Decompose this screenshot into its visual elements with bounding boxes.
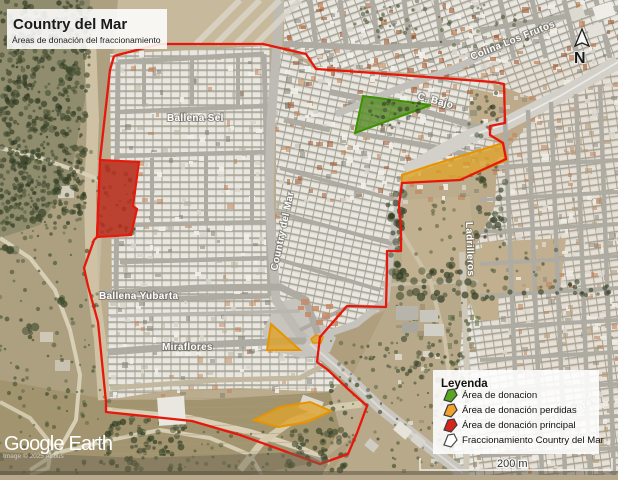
svg-text:Image © 2025 Airbus: Image © 2025 Airbus — [3, 452, 65, 460]
svg-text:Área de donación perdidas: Área de donación perdidas — [462, 405, 577, 416]
svg-text:Fraccionamiento Country del Ma: Fraccionamiento Country del Mar — [462, 435, 605, 446]
svg-text:Country del Mar: Country del Mar — [13, 16, 127, 33]
svg-text:Miraflores: Miraflores — [162, 342, 213, 353]
svg-text:Área de donación principal: Área de donación principal — [462, 420, 576, 431]
svg-text:Google Earth: Google Earth — [4, 433, 112, 455]
svg-text:Ladrilleros: Ladrilleros — [463, 222, 476, 277]
svg-text:N: N — [574, 50, 586, 67]
svg-text:Ballena Yubarta: Ballena Yubarta — [99, 291, 178, 302]
svg-text:Leyenda: Leyenda — [441, 378, 488, 390]
svg-text:Área de donacion: Área de donacion — [462, 390, 537, 401]
svg-text:Ballena Sel: Ballena Sel — [167, 113, 224, 124]
svg-text:Áreas de donación del fraccion: Áreas de donación del fraccionamiento — [12, 35, 161, 45]
svg-text:200 m: 200 m — [497, 458, 528, 470]
